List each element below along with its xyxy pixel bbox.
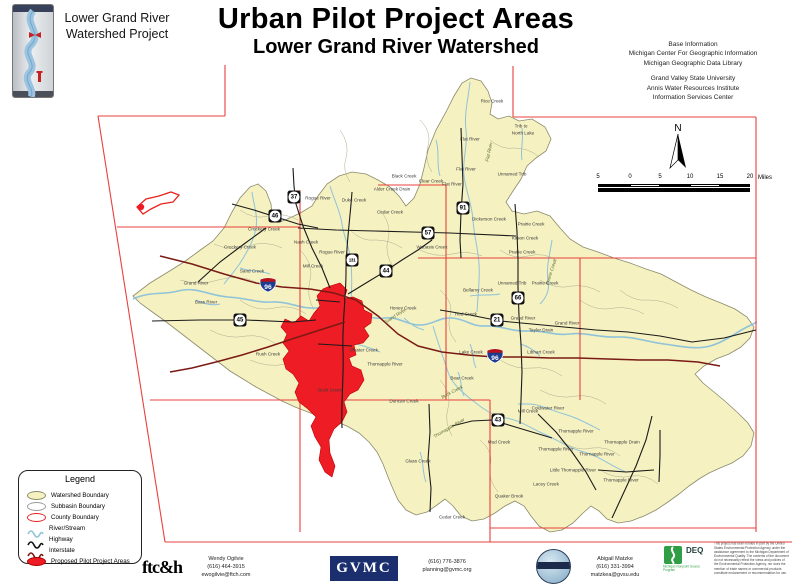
county-swatch — [27, 513, 46, 522]
legend-item-label: Highway — [49, 536, 73, 543]
subbasin-swatch — [27, 502, 46, 511]
pilot-area-springlake — [137, 192, 179, 214]
highway-swatch — [27, 536, 44, 543]
legend-item-label: Watershed Boundary — [51, 492, 109, 499]
interstate-swatch — [27, 547, 44, 554]
watershed-swatch — [27, 491, 46, 500]
watershed-polygon — [133, 78, 754, 532]
legend: Legend Watershed Boundary Subbasin Bound… — [18, 470, 142, 564]
legend-item-label: River/Stream — [49, 525, 85, 532]
legend-item-label: County Boundary — [51, 514, 99, 521]
legend-item-label: Interstate — [49, 547, 75, 554]
legend-item-label: Subbasin Boundary — [51, 503, 105, 510]
pilot-area-swatch — [27, 557, 46, 566]
legend-item-label: Proposed Pilot Project Areas — [51, 558, 130, 565]
river-swatch — [27, 525, 44, 532]
legend-title: Legend — [19, 474, 141, 484]
